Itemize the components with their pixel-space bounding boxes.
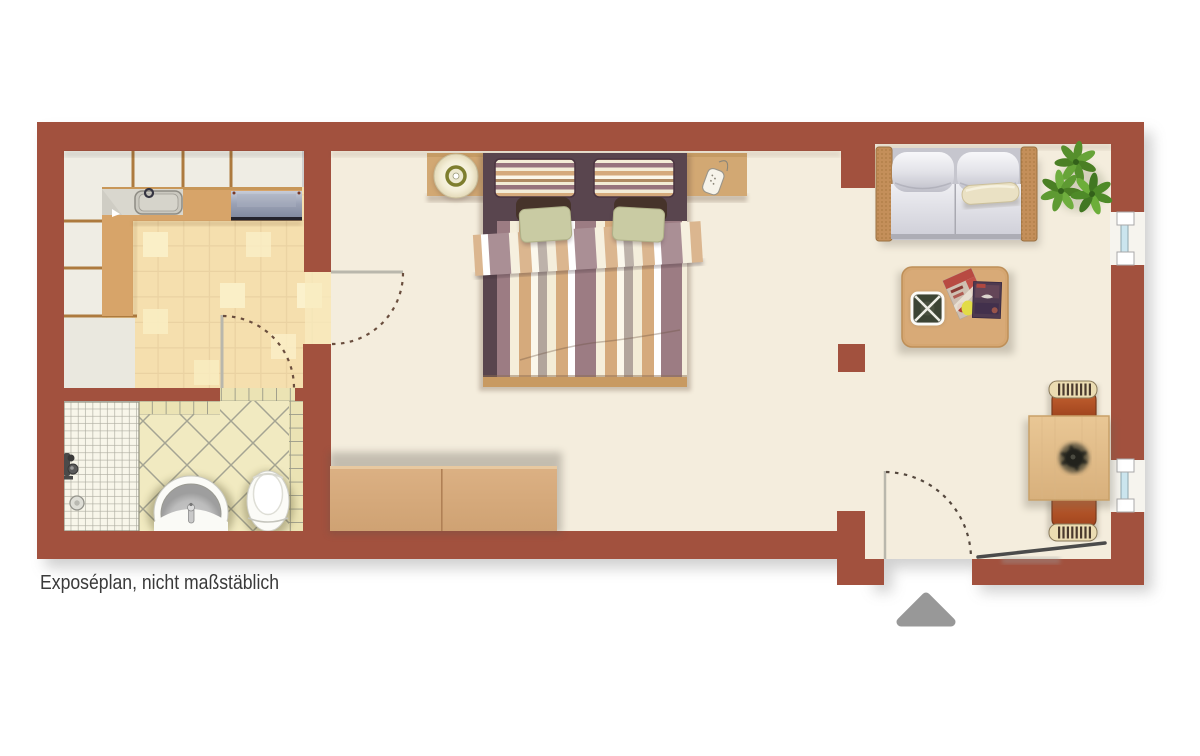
svg-text:Exposéplan, nicht maßstäblich: Exposéplan, nicht maßstäblich [40,571,279,594]
